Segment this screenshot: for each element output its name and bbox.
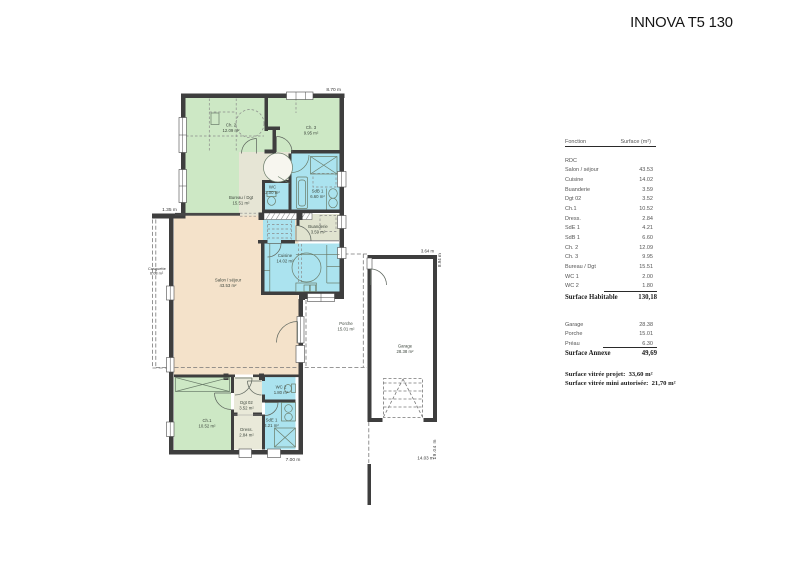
svg-text:14.02 m²: 14.02 m² — [277, 259, 295, 264]
svg-text:6.08 m²: 6.08 m² — [150, 271, 164, 276]
svg-text:43.53 m²: 43.53 m² — [220, 283, 238, 288]
svg-text:6.60 m²: 6.60 m² — [310, 194, 325, 199]
svg-text:3.59 m²: 3.59 m² — [311, 230, 326, 235]
svg-text:Ch. 2: Ch. 2 — [226, 123, 237, 128]
svg-text:Garage: Garage — [398, 344, 413, 349]
svg-text:1.80 m²: 1.80 m² — [274, 390, 289, 395]
svg-text:Salon / séjour: Salon / séjour — [215, 278, 242, 283]
svg-text:4.21 m²: 4.21 m² — [264, 423, 279, 428]
svg-text:3.52 m²: 3.52 m² — [239, 406, 254, 411]
svg-text:1.35 m: 1.35 m — [162, 207, 177, 213]
svg-text:8.94 m: 8.94 m — [437, 253, 442, 267]
svg-text:Dgt 02: Dgt 02 — [240, 400, 253, 405]
svg-text:Porche: Porche — [339, 321, 353, 326]
svg-text:Ch.1: Ch.1 — [202, 418, 212, 423]
svg-text:Dress.: Dress. — [240, 427, 252, 432]
svg-text:12.09 m²: 12.09 m² — [223, 128, 241, 133]
svg-text:15.01 m²: 15.01 m² — [338, 327, 356, 332]
svg-text:Buanderie: Buanderie — [308, 224, 328, 229]
svg-text:8.70 m: 8.70 m — [326, 87, 341, 93]
svg-text:Cuisine: Cuisine — [278, 253, 293, 258]
svg-text:Ch. 3: Ch. 3 — [306, 125, 317, 130]
svg-text:15.51 m²: 15.51 m² — [233, 201, 251, 206]
svg-text:28.38 m²: 28.38 m² — [397, 349, 415, 354]
svg-text:2.84 m²: 2.84 m² — [239, 433, 254, 438]
svg-text:WC: WC — [269, 185, 276, 190]
svg-text:3.64 m: 3.64 m — [421, 248, 435, 253]
svg-text:SdB 1: SdB 1 — [312, 189, 324, 194]
svg-text:WC 2: WC 2 — [276, 385, 287, 390]
svg-text:10.52 m²: 10.52 m² — [199, 424, 217, 429]
svg-text:9.95 m²: 9.95 m² — [304, 131, 319, 136]
svg-text:SdE 1: SdE 1 — [266, 418, 278, 423]
svg-text:7.00 m: 7.00 m — [286, 457, 301, 463]
svg-text:19.04 m: 19.04 m — [432, 439, 437, 459]
svg-text:Bureau / Dgt: Bureau / Dgt — [229, 195, 254, 200]
svg-text:2.00 m²: 2.00 m² — [265, 190, 280, 195]
